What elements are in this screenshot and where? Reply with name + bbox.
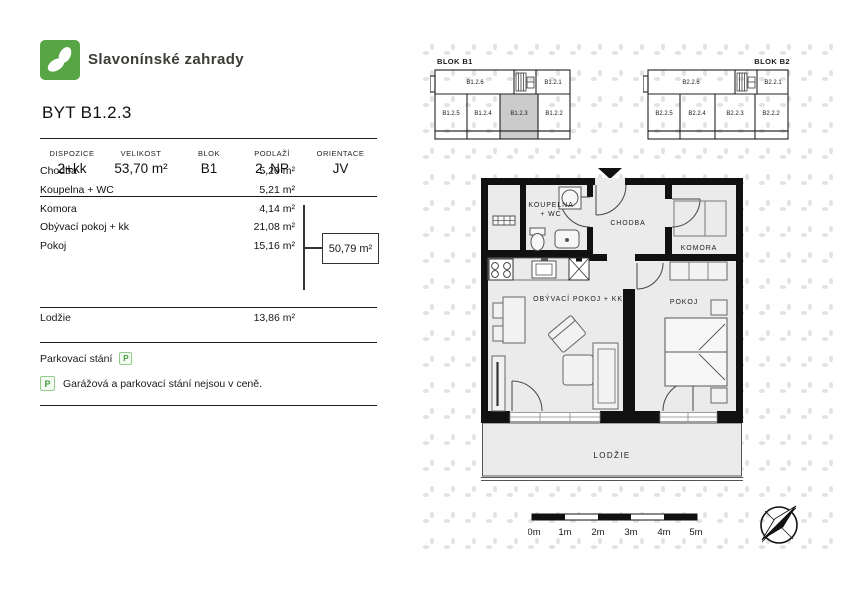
leaf-pair-icon [40,40,80,80]
room-label: Komora [40,203,77,215]
scale-label: 0m [528,527,541,538]
scale-label: 4m [657,527,670,538]
block-b1-title: BLOK B1 [437,57,473,66]
divider [40,405,377,406]
parking-row: Parkovací stání P [40,352,132,365]
room-label-lodzie: LODŽIE [593,451,630,460]
room-label-obyvaci: OBÝVACÍ POKOJ + KK [533,294,623,303]
coffee-table [563,355,593,385]
unit-label: B1.2.2 [545,111,563,117]
room-row: Pokoj15,16 m² [40,237,295,256]
sum-bracket [303,247,323,249]
apartment-datasheet: Slavonínské zahrady BYT B1.2.3 DISPOZICE… [0,0,842,595]
scale-label: 3m [624,527,637,538]
unit-label: B2.2.2 [762,111,780,117]
unit-label: B2.2.6 [682,80,700,86]
compass-icon [752,500,812,560]
stairs-icon [516,73,534,91]
summary-value: JV [333,161,349,176]
radiator-icon [493,216,515,225]
floorplan: KOUPELNA + WC CHODBA KOMORA OBÝVACÍ POKO… [481,166,743,484]
toilet [530,228,545,251]
summary-header: DISPOZICE [50,149,95,158]
block-b2-diagram: BLOK B2 B2.2.6 B2.2.1 B2.2.5 B2.2.4 B2.2… [643,50,793,142]
wardrobe [670,262,727,280]
room-row: Obývací pokoj + kk21,08 m² [40,218,295,237]
bed [665,318,727,386]
divider [40,342,377,343]
room-label: Chodba [40,165,77,177]
block-b2-title: BLOK B2 [754,57,790,66]
unit-label: B2.2.1 [764,80,782,86]
parking-icon: P [40,376,55,391]
unit-label: B1.2.1 [544,80,562,86]
balcony-row: Lodžie 13,86 m² [40,312,295,324]
highlighted-balcony [500,131,538,139]
scale-label: 2m [591,527,604,538]
sofa [593,343,618,409]
interior-total-box: 50,79 m² [322,233,379,264]
room-area: 5,21 m² [259,184,295,196]
room-label-komora: KOMORA [681,245,718,252]
scale-bar: 0m 1m 2m 3m 4m 5m [528,508,708,542]
summary-col-orientace: ORIENTACE JV [304,149,377,176]
interior-total-value: 50,79 m² [329,243,372,255]
room-row: Chodba5,20 m² [40,162,295,181]
tv-board [492,356,505,411]
room-label: Obývací pokoj + kk [40,221,129,233]
kitchen-sink [532,258,556,278]
parking-note-row: P Garážová a parkovací stání nejsou v ce… [40,376,262,391]
room-area: 21,08 m² [254,221,295,233]
unit-label: B1.2.4 [474,111,492,117]
room-label-pokoj: POKOJ [670,299,698,306]
balcony-area: 13,86 m² [254,312,295,324]
room-label: Koupelna + WC [40,184,114,196]
room-row: Koupelna + WC5,21 m² [40,181,295,200]
window [660,413,717,422]
scale-label: 5m [689,527,702,538]
page-title: BYT B1.2.3 [42,103,132,123]
entrance-arrow-icon [598,168,622,179]
room-area: 15,16 m² [254,240,295,252]
balcony-label: Lodžie [40,312,71,324]
unit-label: B2.2.4 [688,111,706,117]
room-list: Chodba5,20 m²Koupelna + WC5,21 m²Komora4… [40,162,295,255]
block-b1-diagram: BLOK B1 B1.2.6 B1.2.1 B1.2.5 B1.2.4 B1.2… [430,50,575,142]
brand-name: Slavonínské zahrady [88,51,244,68]
unit-label: B2.2.5 [655,111,673,117]
divider [40,138,377,139]
parking-note: Garážová a parkovací stání nejsou v ceně… [63,378,262,390]
divider [40,307,377,308]
room-row: Komora4,14 m² [40,199,295,218]
summary-header: ORIENTACE [317,149,365,158]
room-area: 4,14 m² [259,203,295,215]
room-label-koupelna2: + WC [540,211,561,218]
room-label-chodba: CHODBA [610,220,645,227]
brand-logo [40,40,80,80]
summary-header: PODLAŽÍ [254,149,290,158]
unit-label-current: B1.2.3 [510,111,528,117]
summary-header: BLOK [198,149,220,158]
appliance-x-icon [569,258,589,280]
unit-label: B1.2.5 [442,111,460,117]
room-label: Pokoj [40,240,66,252]
stairs-icon [737,73,755,91]
window [510,413,600,422]
unit-label: B1.2.6 [466,80,484,86]
unit-label: B2.2.3 [726,111,744,117]
scale-label: 1m [558,527,571,538]
parking-icon: P [119,352,132,365]
stove-icon [489,259,513,280]
parking-label: Parkovací stání [40,353,112,365]
room-area: 5,20 m² [259,165,295,177]
washbasin [555,230,579,248]
room-label-koupelna: KOUPELNA [528,202,573,209]
summary-header: VELIKOST [121,149,162,158]
